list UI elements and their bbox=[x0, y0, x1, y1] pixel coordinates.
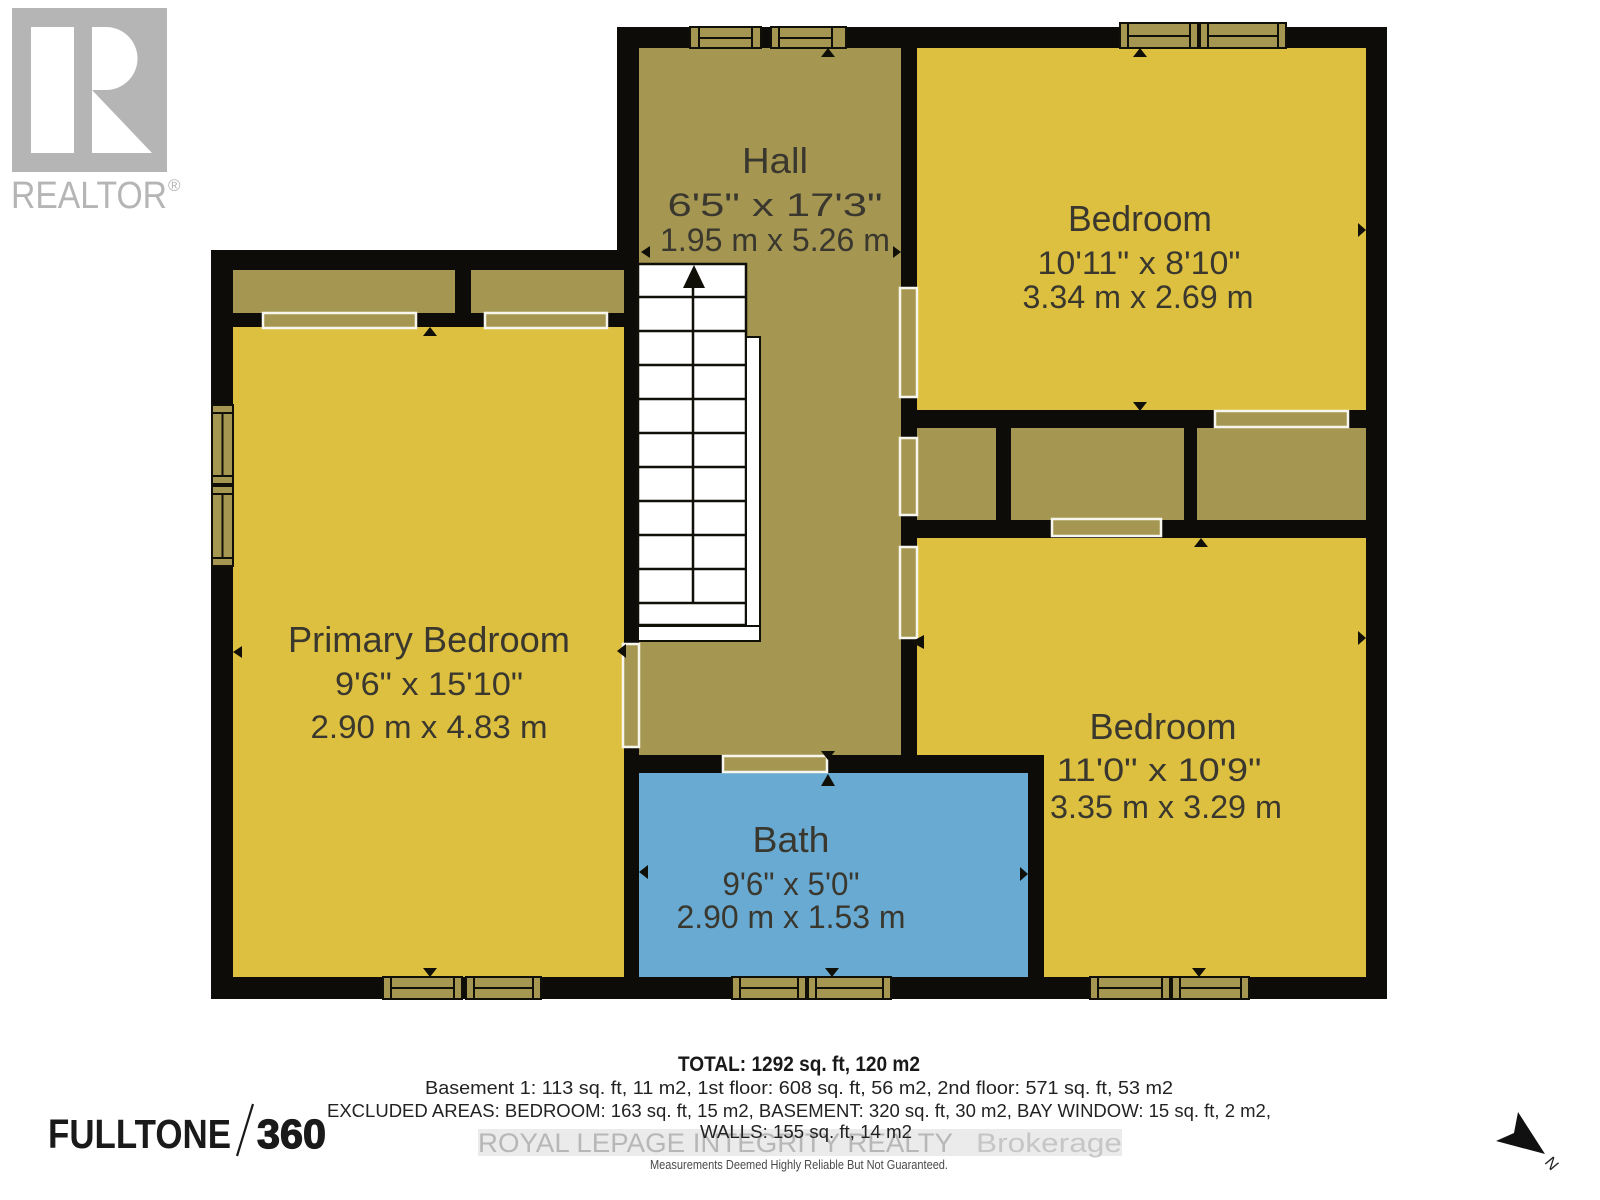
svg-text:3.35 m x 3.29 m: 3.35 m x 3.29 m bbox=[1050, 789, 1282, 825]
svg-text:Bedroom: Bedroom bbox=[1068, 198, 1212, 239]
svg-text:FULLTONE: FULLTONE bbox=[48, 1111, 231, 1157]
svg-text:9'6" x 15'10": 9'6" x 15'10" bbox=[335, 666, 523, 702]
svg-text:9'6" x 5'0": 9'6" x 5'0" bbox=[723, 866, 860, 902]
svg-text:6'5" x 17'3": 6'5" x 17'3" bbox=[668, 187, 883, 223]
svg-text:EXCLUDED AREAS: BEDROOM: 163 s: EXCLUDED AREAS: BEDROOM: 163 sq. ft, 15 … bbox=[327, 1101, 1271, 1121]
svg-text:®: ® bbox=[168, 176, 181, 195]
svg-text:1.95 m x 5.26 m: 1.95 m x 5.26 m bbox=[660, 222, 890, 258]
svg-text:Basement 1: 113 sq. ft, 11 m2,: Basement 1: 113 sq. ft, 11 m2, 1st floor… bbox=[425, 1078, 1173, 1098]
svg-text:Bedroom: Bedroom bbox=[1090, 706, 1237, 747]
svg-text:Hall: Hall bbox=[742, 140, 808, 181]
svg-text:TOTAL: 1292 sq. ft, 120 m2: TOTAL: 1292 sq. ft, 120 m2 bbox=[678, 1053, 920, 1076]
svg-text:WALLS: 155 sq. ft, 14 m2: WALLS: 155 sq. ft, 14 m2 bbox=[700, 1122, 912, 1142]
svg-text:3.34 m x 2.69 m: 3.34 m x 2.69 m bbox=[1023, 279, 1254, 315]
svg-text:10'11" x 8'10": 10'11" x 8'10" bbox=[1038, 245, 1241, 281]
svg-text:2.90 m x 4.83 m: 2.90 m x 4.83 m bbox=[311, 709, 548, 745]
svg-text:360: 360 bbox=[257, 1111, 326, 1157]
svg-text:REALTOR: REALTOR bbox=[11, 175, 167, 217]
svg-text:Brokerage: Brokerage bbox=[976, 1128, 1122, 1158]
svg-text:Bath: Bath bbox=[753, 819, 830, 860]
svg-text:Primary Bedroom: Primary Bedroom bbox=[288, 619, 570, 660]
svg-text:11'0" x 10'9": 11'0" x 10'9" bbox=[1057, 752, 1262, 788]
svg-text:Measurements Deemed Highly Rel: Measurements Deemed Highly Reliable But … bbox=[650, 1158, 948, 1172]
svg-text:2.90 m x 1.53 m: 2.90 m x 1.53 m bbox=[677, 899, 906, 935]
